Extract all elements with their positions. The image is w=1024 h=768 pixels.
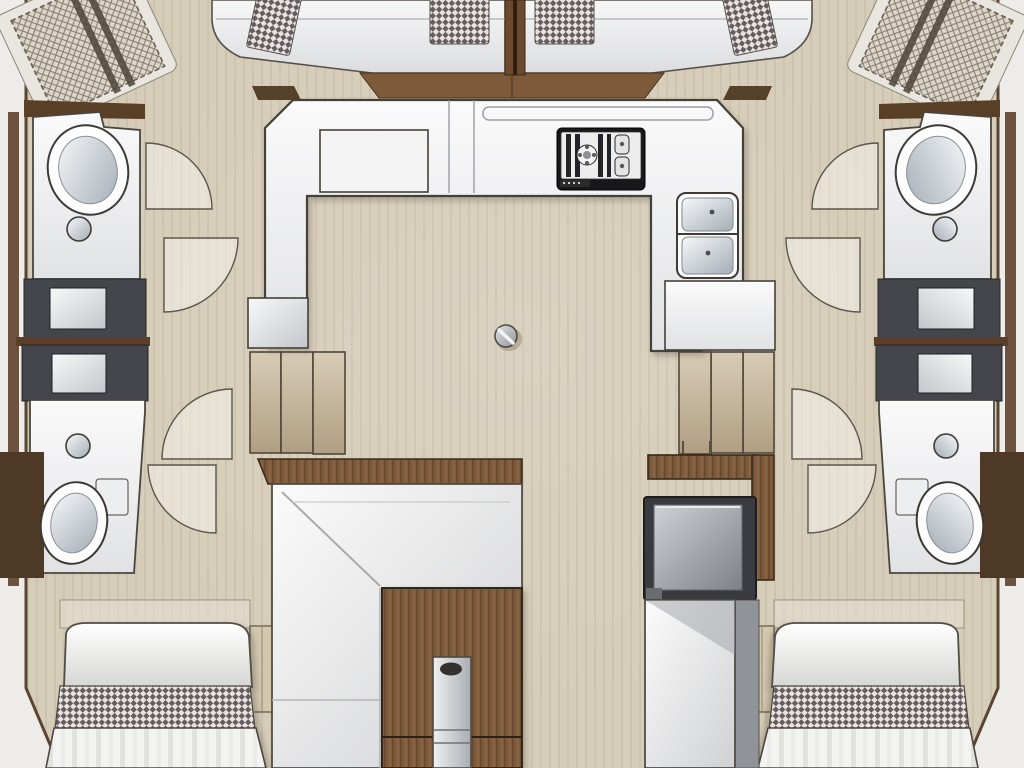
cockpit-cushion — [430, 0, 489, 44]
cockpit-trim — [360, 73, 512, 98]
deck-trim-wedge — [252, 86, 301, 100]
bed-duvet — [46, 728, 266, 768]
pedestal-base — [440, 663, 462, 676]
hatch-lid — [50, 288, 106, 329]
hull-steps — [250, 352, 345, 454]
mast-post — [495, 325, 522, 351]
faucet-fitting — [67, 217, 91, 241]
bed-runner — [55, 686, 255, 729]
door-swing — [164, 238, 238, 312]
floorplan-drawing — [0, 0, 1024, 768]
salon-table — [382, 588, 522, 768]
settee-backrest — [258, 459, 522, 484]
galley-double-sink — [677, 193, 738, 278]
starboard-step-landing — [665, 281, 775, 350]
chart-table-top — [654, 505, 742, 590]
stove — [557, 128, 645, 190]
aft-berth — [46, 623, 266, 768]
faucet-fitting — [66, 434, 90, 458]
counter-inset — [320, 130, 428, 192]
bed-pillow — [64, 623, 252, 687]
cockpit-divider-line — [513, 0, 517, 75]
door-swing — [162, 389, 232, 459]
nav-station — [644, 441, 774, 768]
drain-icon — [710, 210, 715, 215]
hatch-lid — [52, 354, 106, 393]
door-swing — [146, 143, 212, 209]
floorplan-canvas — [0, 0, 1024, 768]
nav-seat-side — [733, 600, 759, 768]
door-swing — [148, 465, 216, 533]
drain-icon — [706, 251, 711, 256]
nav-desk — [648, 455, 757, 479]
head-wall — [0, 452, 44, 578]
port-step-landing — [248, 298, 308, 348]
